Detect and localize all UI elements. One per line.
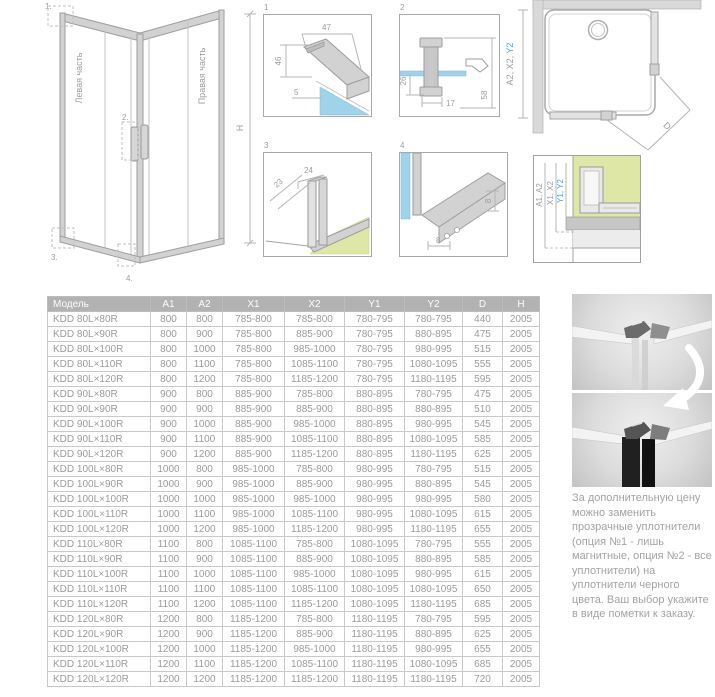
cell-x1: 885-900 (223, 417, 285, 432)
cell-model: KDD 80L×90R (48, 327, 151, 342)
cell-x1: 1085-1100 (223, 582, 285, 597)
right-part-label: Правая часть (197, 47, 207, 104)
cell-y1: 980-995 (345, 492, 405, 507)
cell-d: 625 (463, 447, 503, 462)
cell-y1: 880-895 (345, 447, 405, 462)
svg-text:26: 26 (399, 76, 408, 85)
table-row: KDD 90L×120R 900 1200 885-900 1185-1200 … (48, 447, 540, 462)
cell-x1: 885-900 (223, 387, 285, 402)
svg-text:8: 8 (436, 236, 441, 245)
header-x2: X2 (285, 297, 345, 312)
cell-x2: 885-900 (285, 327, 345, 342)
cell-model: KDD 120L×120R (48, 672, 151, 687)
cell-a2: 800 (187, 612, 223, 627)
cell-a1: 1000 (151, 462, 187, 477)
cell-y1: 980-995 (345, 462, 405, 477)
cell-x1: 985-1000 (223, 522, 285, 537)
svg-text:17: 17 (446, 99, 455, 108)
cell-h: 2005 (503, 492, 540, 507)
table-row: KDD 110L×90R 1100 900 1085-1100 885-900 … (48, 552, 540, 567)
cell-y1: 1180-1195 (345, 657, 405, 672)
cell-d: 580 (463, 492, 503, 507)
cell-x2: 1185-1200 (285, 447, 345, 462)
cell-h: 2005 (503, 597, 540, 612)
cell-model: KDD 90L×120R (48, 447, 151, 462)
cell-a2: 1200 (187, 447, 223, 462)
cell-h: 2005 (503, 357, 540, 372)
cell-a2: 1100 (187, 432, 223, 447)
cell-a1: 1000 (151, 522, 187, 537)
cell-y2: 780-795 (405, 462, 463, 477)
header-x1: X1 (223, 297, 285, 312)
cell-h: 2005 (503, 582, 540, 597)
shower-tray (545, 10, 655, 115)
cell-model: KDD 90L×80R (48, 387, 151, 402)
cell-a1: 900 (151, 447, 187, 462)
cell-x2: 885-900 (285, 552, 345, 567)
detail-3-drawing: 24 23 (263, 152, 372, 257)
table-row: KDD 110L×100R 1100 1000 1085-1100 985-10… (48, 567, 540, 582)
cell-y2: 980-995 (405, 492, 463, 507)
cell-y1: 780-795 (345, 342, 405, 357)
cell-y2: 880-895 (405, 477, 463, 492)
cell-h: 2005 (503, 522, 540, 537)
table-row: KDD 100L×80R 1000 800 985-1000 785-800 9… (48, 462, 540, 477)
cell-model: KDD 110L×90R (48, 552, 151, 567)
cell-h: 2005 (503, 552, 540, 567)
cell-a1: 800 (151, 327, 187, 342)
cell-d: 555 (463, 357, 503, 372)
cell-y2: 1080-1095 (405, 357, 463, 372)
cell-a2: 1000 (187, 642, 223, 657)
table-row: KDD 90L×90R 900 900 885-900 885-900 880-… (48, 402, 540, 417)
cell-d: 515 (463, 462, 503, 477)
cell-a1: 1200 (151, 657, 187, 672)
svg-text:5: 5 (294, 88, 299, 97)
table-row: KDD 120L×80R 1200 800 1185-1200 785-800 … (48, 612, 540, 627)
detail-3-number: 3 (264, 141, 268, 150)
door-profile-tip (466, 59, 488, 72)
svg-text:8: 8 (484, 198, 493, 203)
cell-model: KDD 100L×100R (48, 492, 151, 507)
cell-a2: 1200 (187, 522, 223, 537)
cell-x1: 785-800 (223, 357, 285, 372)
cell-model: KDD 100L×120R (48, 522, 151, 537)
cell-x1: 785-800 (223, 372, 285, 387)
cell-y1: 1180-1195 (345, 612, 405, 627)
header-y1: Y1 (345, 297, 405, 312)
header-y2: Y2 (405, 297, 463, 312)
cell-y1: 1180-1195 (345, 672, 405, 687)
cell-h: 2005 (503, 642, 540, 657)
height-dimension: H (235, 11, 256, 246)
cell-a1: 1100 (151, 582, 187, 597)
wall-top (533, 0, 701, 9)
cell-y2: 980-995 (405, 642, 463, 657)
svg-text:X1, X2: X1, X2 (546, 180, 555, 205)
cell-x2: 785-800 (285, 612, 345, 627)
cell-d: 585 (463, 552, 503, 567)
cell-x1: 1085-1100 (223, 597, 285, 612)
cell-model: KDD 120L×100R (48, 642, 151, 657)
cell-y2: 1080-1095 (405, 657, 463, 672)
cell-y1: 980-995 (345, 522, 405, 537)
cell-x2: 985-1000 (285, 642, 345, 657)
cell-a1: 1200 (151, 627, 187, 642)
svg-text:A1, A2: A1, A2 (535, 183, 544, 207)
cell-model: KDD 90L×110R (48, 432, 151, 447)
detail-4: 4 8 8 (399, 141, 508, 257)
cell-x1: 985-1000 (223, 477, 285, 492)
cell-x2: 1085-1100 (285, 657, 345, 672)
left-part-label: Левая часть (74, 52, 84, 103)
plan-left-dimension: A2, X2, Y2 (505, 10, 528, 118)
cell-d: 595 (463, 372, 503, 387)
cell-model: KDD 80L×120R (48, 372, 151, 387)
catalog-page: Левая часть Правая часть H 1. 2. 3. 4. 1 (0, 0, 715, 697)
table-row: KDD 100L×90R 1000 900 985-1000 885-900 9… (48, 477, 540, 492)
detail-4-number: 4 (400, 141, 404, 150)
cell-y2: 1180-1195 (405, 522, 463, 537)
cell-a2: 800 (187, 387, 223, 402)
cell-y1: 780-795 (345, 372, 405, 387)
cell-h: 2005 (503, 627, 540, 642)
cell-model: KDD 80L×80R (48, 312, 151, 327)
cell-a1: 1100 (151, 552, 187, 567)
isometric-enclosure-drawing: Левая часть Правая часть H 1. 2. 3. 4. (30, 0, 260, 290)
replace-arrow-icon (643, 342, 715, 420)
table-row: KDD 80L×80R 800 800 785-800 785-800 780-… (48, 312, 540, 327)
cell-x1: 785-800 (223, 312, 285, 327)
cell-y1: 880-895 (345, 387, 405, 402)
svg-text:H: H (235, 125, 245, 132)
black-seal-option-note: За дополнительную цену можно заменить пр… (572, 491, 714, 622)
cell-x1: 885-900 (223, 402, 285, 417)
cell-h: 2005 (503, 672, 540, 687)
cell-x2: 1085-1100 (285, 432, 345, 447)
handle-section (420, 38, 442, 96)
svg-text:A2, X2, Y2: A2, X2, Y2 (505, 43, 515, 86)
header-a2: A2 (187, 297, 223, 312)
cell-y2: 780-795 (405, 312, 463, 327)
header-d: D (463, 297, 503, 312)
cell-d: 615 (463, 567, 503, 582)
svg-text:58: 58 (480, 90, 489, 99)
detail-2-number: 2 (400, 3, 404, 12)
cell-model: KDD 120L×80R (48, 612, 151, 627)
cell-a2: 900 (187, 477, 223, 492)
cell-h: 2005 (503, 537, 540, 552)
cell-x2: 1085-1100 (285, 507, 345, 522)
cell-x2: 785-800 (285, 462, 345, 477)
cell-x2: 1185-1200 (285, 597, 345, 612)
table-row: KDD 90L×110R 900 1100 885-900 1085-1100 … (48, 432, 540, 447)
cell-a1: 900 (151, 387, 187, 402)
table-row: KDD 110L×120R 1100 1200 1085-1100 1185-1… (48, 597, 540, 612)
cell-x1: 1185-1200 (223, 612, 285, 627)
cell-a2: 1000 (187, 417, 223, 432)
cell-h: 2005 (503, 567, 540, 582)
cell-model: KDD 100L×80R (48, 462, 151, 477)
cell-x2: 885-900 (285, 627, 345, 642)
section-detail-drawing: A1, A2 X1, X2 Y1, Y2 (533, 155, 641, 263)
cell-h: 2005 (503, 477, 540, 492)
cell-d: 475 (463, 327, 503, 342)
cell-x1: 1085-1100 (223, 552, 285, 567)
cell-y2: 1180-1195 (405, 672, 463, 687)
cell-a2: 1000 (187, 492, 223, 507)
cell-d: 545 (463, 417, 503, 432)
cell-h: 2005 (503, 657, 540, 672)
cell-a1: 1100 (151, 597, 187, 612)
cell-x1: 1185-1200 (223, 657, 285, 672)
cell-d: 655 (463, 522, 503, 537)
cell-x2: 1085-1100 (285, 582, 345, 597)
cell-h: 2005 (503, 612, 540, 627)
cell-model: KDD 80L×110R (48, 357, 151, 372)
cell-x1: 1185-1200 (223, 627, 285, 642)
cell-x2: 1185-1200 (285, 522, 345, 537)
cell-model: KDD 90L×100R (48, 417, 151, 432)
cell-y2: 980-995 (405, 342, 463, 357)
cell-x2: 985-1000 (285, 417, 345, 432)
table-row: KDD 80L×110R 800 1100 785-800 1085-1100 … (48, 357, 540, 372)
cell-a1: 1100 (151, 567, 187, 582)
cell-y1: 880-895 (345, 417, 405, 432)
cell-h: 2005 (503, 462, 540, 477)
cell-y1: 980-995 (345, 477, 405, 492)
table-row: KDD 110L×80R 1100 800 1085-1100 785-800 … (48, 537, 540, 552)
cell-y2: 1180-1195 (405, 372, 463, 387)
cell-y2: 880-895 (405, 627, 463, 642)
cell-model: KDD 80L×100R (48, 342, 151, 357)
table-row: KDD 120L×100R 1200 1000 1185-1200 985-10… (48, 642, 540, 657)
cell-model: KDD 90L×90R (48, 402, 151, 417)
cell-h: 2005 (503, 312, 540, 327)
detail-2-drawing: 26 17 58 (399, 14, 500, 117)
cell-a1: 900 (151, 432, 187, 447)
cell-h: 2005 (503, 447, 540, 462)
cell-y1: 980-995 (345, 507, 405, 522)
svg-text:Y1, Y2: Y1, Y2 (556, 179, 565, 203)
cell-d: 475 (463, 387, 503, 402)
svg-text:D: D (661, 120, 673, 132)
cell-a2: 900 (187, 327, 223, 342)
table-row: KDD 120L×90R 1200 900 1185-1200 885-900 … (48, 627, 540, 642)
cell-y2: 880-895 (405, 552, 463, 567)
cell-a1: 800 (151, 372, 187, 387)
detail-1-drawing: 47 46 5 (263, 14, 372, 117)
cell-model: KDD 120L×90R (48, 627, 151, 642)
cell-a1: 1000 (151, 507, 187, 522)
table-row: KDD 80L×90R 800 900 785-800 885-900 780-… (48, 327, 540, 342)
table-row: KDD 100L×100R 1000 1000 985-1000 985-100… (48, 492, 540, 507)
cell-x1: 785-800 (223, 342, 285, 357)
cell-a1: 800 (151, 357, 187, 372)
cell-y2: 780-795 (405, 537, 463, 552)
cell-a2: 1200 (187, 597, 223, 612)
cell-d: 650 (463, 582, 503, 597)
table-row: KDD 100L×110R 1000 1100 985-1000 1085-11… (48, 507, 540, 522)
cell-x1: 885-900 (223, 432, 285, 447)
cell-y1: 880-895 (345, 432, 405, 447)
table-row: KDD 110L×110R 1100 1100 1085-1100 1085-1… (48, 582, 540, 597)
cell-a2: 1200 (187, 372, 223, 387)
wall-left (533, 0, 543, 133)
cell-x2: 1185-1200 (285, 372, 345, 387)
cell-y2: 1080-1095 (405, 582, 463, 597)
cell-d: 510 (463, 402, 503, 417)
detail-1-number: 1 (264, 3, 268, 12)
cell-d: 555 (463, 537, 503, 552)
cell-y1: 880-895 (345, 402, 405, 417)
cell-x1: 985-1000 (223, 492, 285, 507)
cell-d: 685 (463, 597, 503, 612)
cell-a2: 800 (187, 537, 223, 552)
svg-text:46: 46 (274, 56, 283, 65)
cell-y2: 1180-1195 (405, 597, 463, 612)
cell-h: 2005 (503, 417, 540, 432)
cell-d: 685 (463, 657, 503, 672)
header-h: H (503, 297, 540, 312)
cell-a1: 900 (151, 402, 187, 417)
cell-y2: 780-795 (405, 387, 463, 402)
dimensions-table-wrap: Модель A1 A2 X1 X2 Y1 Y2 D H KDD 80L×80R… (47, 296, 539, 687)
cell-x1: 885-900 (223, 447, 285, 462)
cell-d: 515 (463, 342, 503, 357)
detail-1: 1 47 46 5 (263, 3, 372, 117)
cell-y2: 980-995 (405, 417, 463, 432)
cell-model: KDD 110L×120R (48, 597, 151, 612)
cell-a1: 1200 (151, 672, 187, 687)
callout-2: 2. (122, 113, 129, 122)
cell-x1: 985-1000 (223, 462, 285, 477)
guide-profile (308, 177, 327, 247)
cell-model: KDD 110L×100R (48, 567, 151, 582)
svg-text:47: 47 (322, 23, 331, 32)
cell-a1: 800 (151, 312, 187, 327)
cell-y2: 1180-1195 (405, 447, 463, 462)
cell-x2: 985-1000 (285, 567, 345, 582)
cell-h: 2005 (503, 387, 540, 402)
cell-a2: 1100 (187, 507, 223, 522)
plan-view-drawing: D A2, X2, Y2 (505, 0, 715, 155)
cell-y1: 1080-1095 (345, 597, 405, 612)
dimensions-table: Модель A1 A2 X1 X2 Y1 Y2 D H KDD 80L×80R… (47, 296, 540, 687)
cell-a1: 900 (151, 417, 187, 432)
cell-a2: 800 (187, 312, 223, 327)
cell-y1: 780-795 (345, 357, 405, 372)
cell-a1: 1000 (151, 477, 187, 492)
cell-h: 2005 (503, 432, 540, 447)
cell-x2: 1185-1200 (285, 672, 345, 687)
svg-text:24: 24 (304, 166, 313, 175)
cell-model: KDD 100L×90R (48, 477, 151, 492)
cell-x2: 985-1000 (285, 492, 345, 507)
cell-x1: 785-800 (223, 327, 285, 342)
cell-y1: 1180-1195 (345, 642, 405, 657)
right-door (650, 12, 659, 75)
threshold-profile (422, 173, 505, 243)
cell-a2: 900 (187, 402, 223, 417)
cell-h: 2005 (503, 507, 540, 522)
cell-a2: 800 (187, 462, 223, 477)
cell-x2: 985-1000 (285, 342, 345, 357)
cell-x1: 1085-1100 (223, 567, 285, 582)
cell-h: 2005 (503, 372, 540, 387)
cell-d: 655 (463, 642, 503, 657)
detail-3: 3 24 23 (263, 141, 372, 257)
cell-d: 625 (463, 627, 503, 642)
table-row: KDD 120L×120R 1200 1200 1185-1200 1185-1… (48, 672, 540, 687)
cell-d: 615 (463, 507, 503, 522)
cell-model: KDD 120L×110R (48, 657, 151, 672)
cell-x2: 885-900 (285, 477, 345, 492)
cell-y1: 780-795 (345, 312, 405, 327)
cell-h: 2005 (503, 402, 540, 417)
cell-x1: 1185-1200 (223, 642, 285, 657)
table-row: KDD 90L×100R 900 1000 885-900 985-1000 8… (48, 417, 540, 432)
cell-a2: 1000 (187, 567, 223, 582)
cell-d: 585 (463, 432, 503, 447)
header-a1: A1 (151, 297, 187, 312)
table-row: KDD 120L×110R 1200 1100 1185-1200 1085-1… (48, 657, 540, 672)
cell-y1: 1080-1095 (345, 582, 405, 597)
cell-a2: 1100 (187, 357, 223, 372)
cell-model: KDD 110L×110R (48, 582, 151, 597)
table-row: KDD 100L×120R 1000 1200 985-1000 1185-12… (48, 522, 540, 537)
cell-a2: 1100 (187, 582, 223, 597)
cell-model: KDD 100L×110R (48, 507, 151, 522)
cell-h: 2005 (503, 342, 540, 357)
cell-a1: 1200 (151, 642, 187, 657)
glass-pane (401, 153, 410, 219)
cell-a2: 900 (187, 627, 223, 642)
cell-x2: 785-800 (285, 537, 345, 552)
cell-y1: 1080-1095 (345, 537, 405, 552)
cell-x2: 1085-1100 (285, 357, 345, 372)
cell-y1: 1080-1095 (345, 552, 405, 567)
tray-rim (566, 217, 640, 230)
svg-text:23: 23 (272, 176, 285, 189)
cell-a2: 1200 (187, 672, 223, 687)
header-model: Модель (48, 297, 151, 312)
cell-model: KDD 110L×80R (48, 537, 151, 552)
cell-a1: 1100 (151, 537, 187, 552)
cell-y2: 880-895 (405, 402, 463, 417)
cell-h: 2005 (503, 327, 540, 342)
cell-y1: 1080-1095 (345, 567, 405, 582)
cell-d: 545 (463, 477, 503, 492)
cell-y2: 1080-1095 (405, 507, 463, 522)
cell-a2: 1100 (187, 657, 223, 672)
cell-y2: 780-795 (405, 612, 463, 627)
cell-a2: 900 (187, 552, 223, 567)
cell-y2: 980-995 (405, 567, 463, 582)
cell-y1: 1180-1195 (345, 627, 405, 642)
detail-2: 2 26 17 58 (399, 3, 500, 117)
cell-x1: 1185-1200 (223, 672, 285, 687)
cell-a1: 1000 (151, 492, 187, 507)
cell-d: 595 (463, 612, 503, 627)
cell-x2: 785-800 (285, 387, 345, 402)
bottom-door (550, 111, 616, 120)
cell-y2: 1080-1095 (405, 432, 463, 447)
table-row: KDD 80L×120R 800 1200 785-800 1185-1200 … (48, 372, 540, 387)
cell-x2: 785-800 (285, 312, 345, 327)
detail-4-drawing: 8 8 (399, 152, 508, 257)
callout-4: 4. (126, 274, 133, 283)
